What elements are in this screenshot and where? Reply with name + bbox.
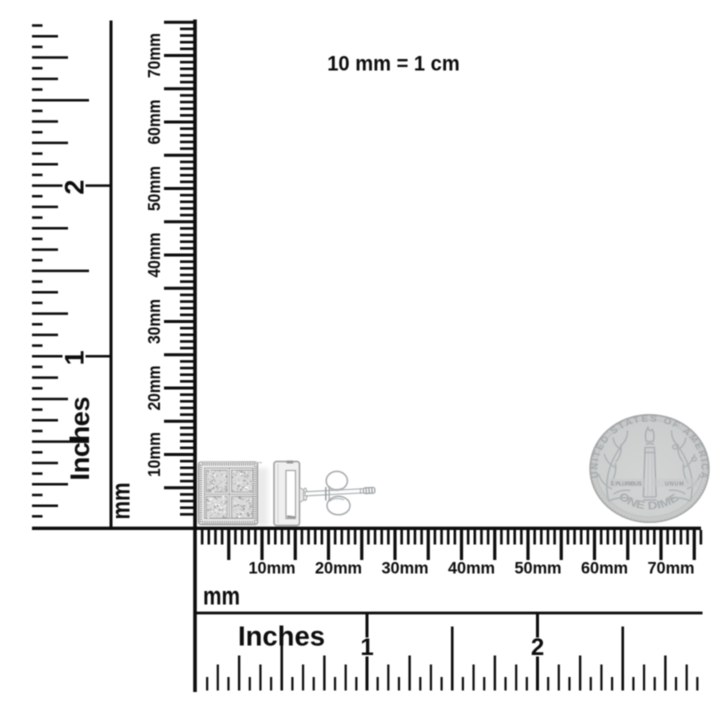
svg-text:E PLURIBUS: E PLURIBUS bbox=[611, 482, 642, 488]
svg-text:1: 1 bbox=[360, 634, 373, 661]
svg-text:2: 2 bbox=[60, 180, 90, 195]
svg-text:30mm: 30mm bbox=[144, 299, 164, 344]
svg-text:40mm: 40mm bbox=[448, 559, 495, 577]
svg-text:mm: mm bbox=[106, 483, 136, 520]
svg-text:30mm: 30mm bbox=[381, 559, 428, 577]
svg-text:1: 1 bbox=[60, 350, 90, 365]
svg-text:50mm: 50mm bbox=[144, 166, 164, 211]
svg-text:20mm: 20mm bbox=[315, 559, 362, 577]
svg-text:2: 2 bbox=[531, 634, 544, 661]
svg-text:10mm: 10mm bbox=[248, 559, 295, 577]
svg-text:UNUM: UNUM bbox=[665, 482, 684, 488]
svg-text:20mm: 20mm bbox=[144, 366, 164, 411]
svg-text:40mm: 40mm bbox=[144, 233, 164, 278]
svg-text:10mm: 10mm bbox=[144, 432, 164, 477]
svg-text:10 mm = 1 cm: 10 mm = 1 cm bbox=[327, 52, 460, 75]
svg-text:70mm: 70mm bbox=[144, 33, 164, 78]
svg-text:50mm: 50mm bbox=[514, 559, 561, 577]
svg-text:70mm: 70mm bbox=[647, 559, 694, 577]
svg-text:Inches: Inches bbox=[65, 397, 95, 481]
svg-text:mm: mm bbox=[203, 581, 240, 611]
svg-text:60mm: 60mm bbox=[144, 100, 164, 145]
svg-text:60mm: 60mm bbox=[581, 559, 628, 577]
svg-text:Inches: Inches bbox=[238, 620, 325, 651]
